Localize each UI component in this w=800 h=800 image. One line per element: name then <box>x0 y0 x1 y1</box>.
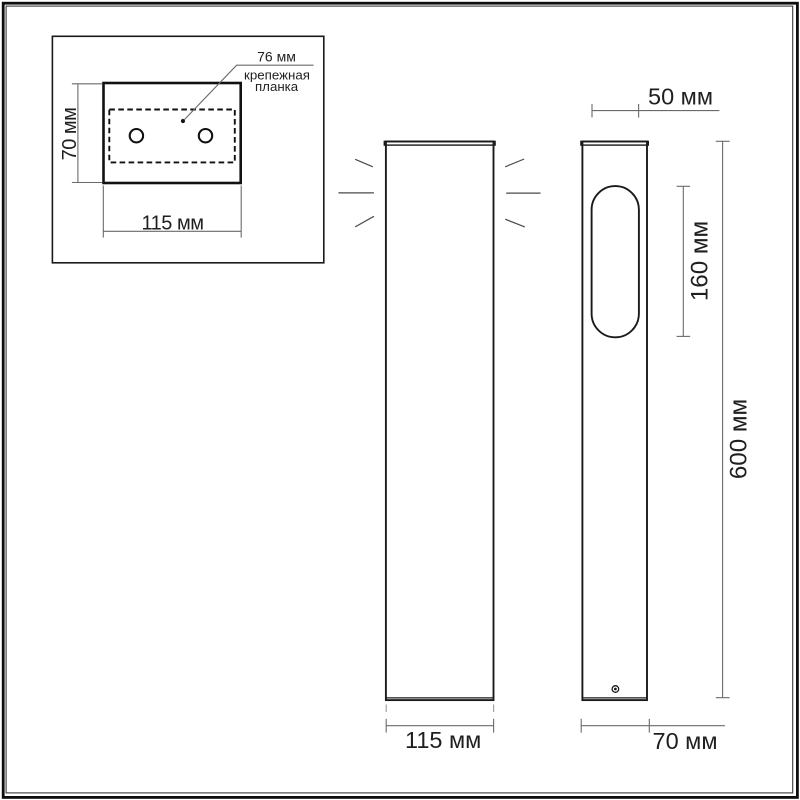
svg-text:70 мм: 70 мм <box>59 108 81 161</box>
svg-text:планка: планка <box>255 79 299 94</box>
svg-text:70 мм: 70 мм <box>653 728 718 754</box>
svg-text:115 мм: 115 мм <box>405 727 481 753</box>
svg-text:76 мм: 76 мм <box>257 49 296 65</box>
svg-text:600 мм: 600 мм <box>726 399 753 479</box>
svg-text:160 мм: 160 мм <box>687 221 714 301</box>
svg-text:115 мм: 115 мм <box>142 212 204 234</box>
svg-text:50 мм: 50 мм <box>648 83 713 109</box>
